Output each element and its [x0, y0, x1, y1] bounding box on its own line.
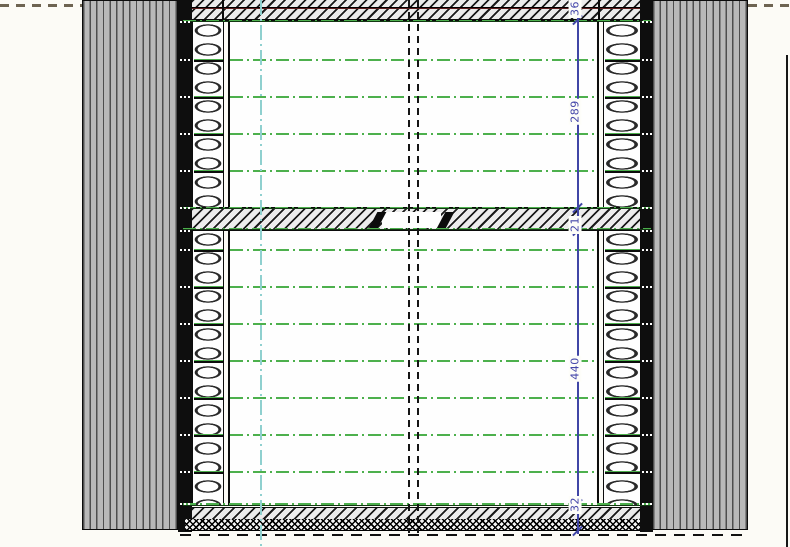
stud-fixing-dot [188, 360, 190, 362]
stud-fixing-dot [646, 96, 648, 98]
center-axis-line [260, 0, 262, 547]
stud-fixing-dot [646, 230, 648, 232]
stud-fixing-dot [650, 286, 652, 288]
stud-fixing-dot [646, 21, 648, 23]
stud-fixing-dot [180, 503, 182, 505]
stud-fixing-dot [188, 434, 190, 436]
stud-fixing-dot [646, 360, 648, 362]
stud-fixing-dot [646, 133, 648, 135]
grid-line-green [230, 471, 596, 473]
insulation-divider [194, 59, 223, 62]
stud-fixing-dot [646, 59, 648, 61]
grid-line-green [230, 133, 596, 135]
grid-line-green [230, 249, 596, 251]
stud-fixing-dot [184, 249, 186, 251]
insulation-divider [605, 397, 640, 400]
dimension-line [577, 0, 579, 534]
stud-fixing-dot [650, 360, 652, 362]
hidden-edge-line-2 [417, 0, 419, 533]
stud-fixing-dot [188, 397, 190, 399]
insulation-divider [194, 286, 223, 289]
insulation-divider [605, 360, 640, 363]
insulation-divider [194, 249, 223, 252]
stud-fixing-dot [642, 286, 644, 288]
stud-fixing-dot [650, 133, 652, 135]
stud-fixing-dot [188, 249, 190, 251]
stud-fixing-dot [646, 286, 648, 288]
stud-fixing-dot [188, 286, 190, 288]
stud-fixing-dot [642, 21, 644, 23]
stud-fixing-dot [646, 471, 648, 473]
insulation-divider [605, 323, 640, 326]
grid-overlay [0, 0, 790, 547]
stud-fixing-dot [188, 207, 190, 209]
stud-fixing-dot [642, 133, 644, 135]
stud-fixing-dot [184, 170, 186, 172]
stud-fixing-dot [180, 360, 182, 362]
insulation-divider [194, 434, 223, 437]
cad-drawing-viewport[interactable]: 36 289 21 440 32 [0, 0, 790, 547]
stud-fixing-dot [180, 96, 182, 98]
stud-fixing-dot [642, 249, 644, 251]
stud-fixing-dot [180, 170, 182, 172]
stud-fixing-dot [650, 230, 652, 232]
stud-fixing-dot [184, 59, 186, 61]
grid-line-green [230, 397, 596, 399]
grid-line-green [230, 59, 596, 61]
stud-fixing-dot [184, 360, 186, 362]
stud-fixing-dot [642, 503, 644, 505]
grid-line-green [230, 434, 596, 436]
stud-fixing-dot [180, 249, 182, 251]
insulation-divider [194, 471, 223, 474]
stud-fixing-dot [184, 471, 186, 473]
stud-fixing-dot [646, 434, 648, 436]
dim-label-upper: 289 [569, 99, 582, 125]
stud-fixing-dot [184, 286, 186, 288]
grid-line-green [230, 96, 596, 98]
insulation-divider [194, 133, 223, 136]
stud-fixing-dot [188, 170, 190, 172]
insulation-divider [194, 170, 223, 173]
stud-fixing-dot [642, 434, 644, 436]
stud-fixing-dot [650, 323, 652, 325]
stud-fixing-dot [642, 397, 644, 399]
insulation-divider [605, 434, 640, 437]
stud-fixing-dot [184, 96, 186, 98]
hidden-edge-line-1 [408, 0, 410, 533]
stud-fixing-dot [184, 133, 186, 135]
stud-fixing-dot [180, 471, 182, 473]
stud-fixing-dot [650, 249, 652, 251]
dim-label-top: 36 [569, 0, 582, 18]
stud-fixing-dot [180, 323, 182, 325]
stud-fixing-dot [188, 323, 190, 325]
insulation-divider [605, 249, 640, 252]
stud-fixing-dot [650, 96, 652, 98]
insulation-divider [194, 360, 223, 363]
stud-fixing-dot [180, 397, 182, 399]
stud-fixing-dot [188, 230, 190, 232]
stud-fixing-dot [642, 360, 644, 362]
stud-fixing-dot [642, 170, 644, 172]
stud-fixing-dot [184, 397, 186, 399]
grid-line-green [230, 170, 596, 172]
stud-fixing-dot [180, 286, 182, 288]
insulation-divider [194, 397, 223, 400]
stud-fixing-dot [188, 96, 190, 98]
grid-line-green [230, 360, 596, 362]
insulation-divider [605, 471, 640, 474]
stud-fixing-dot [180, 434, 182, 436]
stud-fixing-dot [646, 170, 648, 172]
stud-fixing-dot [650, 434, 652, 436]
stud-fixing-dot [188, 503, 190, 505]
grid-line-green [230, 286, 596, 288]
stud-fixing-dot [642, 96, 644, 98]
stud-fixing-dot [180, 59, 182, 61]
stud-fixing-dot [650, 471, 652, 473]
stud-fixing-dot [642, 230, 644, 232]
insulation-divider [605, 96, 640, 99]
insulation-divider [605, 59, 640, 62]
stud-fixing-dot [642, 207, 644, 209]
stud-fixing-dot [650, 397, 652, 399]
stud-fixing-dot [180, 230, 182, 232]
stud-fixing-dot [642, 323, 644, 325]
stud-fixing-dot [184, 230, 186, 232]
sheet-frame-line [786, 55, 788, 547]
stud-fixing-dot [650, 207, 652, 209]
grid-line-green [230, 323, 596, 325]
stud-fixing-dot [188, 21, 190, 23]
stud-fixing-dot [646, 249, 648, 251]
stud-fixing-dot [180, 133, 182, 135]
stud-fixing-dot [642, 59, 644, 61]
insulation-divider [605, 286, 640, 289]
stud-fixing-dot [180, 207, 182, 209]
stud-fixing-dot [646, 397, 648, 399]
stud-fixing-dot [188, 133, 190, 135]
stud-fixing-dot [650, 59, 652, 61]
dim-label-lower: 440 [569, 356, 582, 382]
stud-fixing-dot [188, 59, 190, 61]
stud-fixing-dot [184, 323, 186, 325]
insulation-divider [194, 323, 223, 326]
stud-fixing-dot [650, 170, 652, 172]
stud-fixing-dot [188, 471, 190, 473]
stud-fixing-dot [184, 503, 186, 505]
stud-fixing-dot [646, 503, 648, 505]
insulation-divider [194, 96, 223, 99]
stud-fixing-dot [184, 434, 186, 436]
stud-fixing-dot [184, 21, 186, 23]
stud-fixing-dot [180, 21, 182, 23]
stud-fixing-dot [650, 21, 652, 23]
insulation-divider [605, 170, 640, 173]
stud-fixing-dot [646, 323, 648, 325]
stud-fixing-dot [646, 207, 648, 209]
stud-fixing-dot [184, 207, 186, 209]
stud-fixing-dot [650, 503, 652, 505]
dim-label-bottom: 32 [569, 496, 582, 514]
dim-label-beam: 21 [569, 216, 582, 234]
stud-fixing-dot [642, 471, 644, 473]
insulation-divider [605, 133, 640, 136]
